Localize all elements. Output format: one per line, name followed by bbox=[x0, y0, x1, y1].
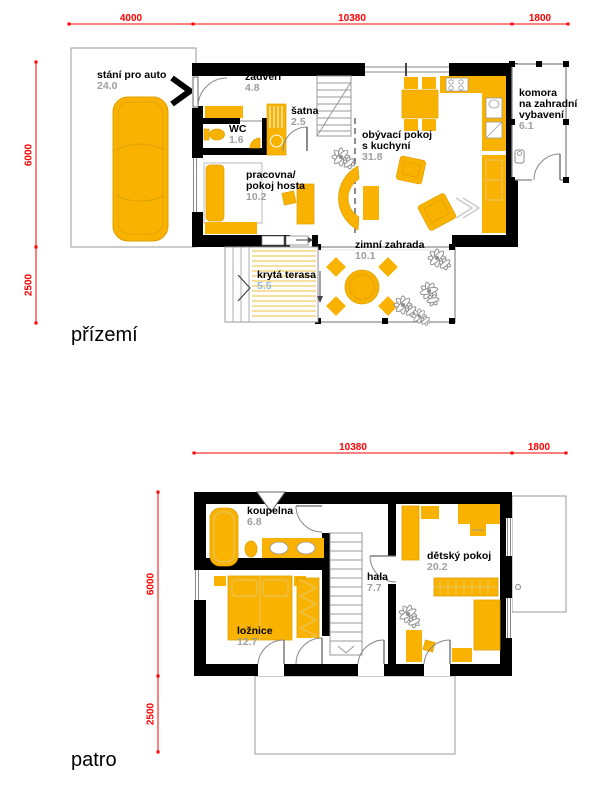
room-label-hala: hala7.7 bbox=[367, 572, 388, 594]
armchair bbox=[417, 193, 457, 232]
plant bbox=[332, 148, 357, 171]
stairs-ground bbox=[317, 76, 351, 136]
room-label-komora: komorana zahradnívybavení6.1 bbox=[519, 88, 577, 132]
room-label-koupelna: koupelna6.8 bbox=[247, 506, 293, 528]
dim-10380-upper: 10380 bbox=[339, 442, 367, 453]
hall-cabinet bbox=[205, 106, 243, 118]
storage-roof-outline bbox=[512, 496, 566, 612]
dim-10380-ground: 10380 bbox=[338, 13, 366, 24]
terrace-roof-outline bbox=[255, 676, 455, 754]
floorplan-page: 4000 10380 1800 6000 2500 stání pro auto… bbox=[0, 0, 600, 800]
kids-desk-2 bbox=[406, 630, 422, 662]
kids-bed bbox=[402, 506, 419, 560]
room-label-loznice: ložnice12.7 bbox=[237, 626, 273, 648]
daybed bbox=[206, 165, 224, 221]
room-label-satna: šatna2.5 bbox=[291, 106, 318, 128]
room-label-detsky-pokoj: dětský pokoj20.2 bbox=[427, 551, 491, 573]
toilet bbox=[245, 541, 257, 557]
kids-wardrobe bbox=[434, 578, 498, 596]
kids-desk bbox=[458, 504, 500, 524]
dim-1800-ground: 1800 bbox=[529, 13, 551, 24]
room-label-zimni-zahrada: zimní zahrada10.1 bbox=[355, 240, 424, 262]
toilet bbox=[210, 129, 225, 140]
plant bbox=[396, 603, 426, 632]
dim-6000-upper: 6000 bbox=[146, 573, 157, 595]
upper-floor-plan bbox=[157, 452, 568, 755]
front-door bbox=[192, 76, 227, 108]
satna-door bbox=[283, 127, 307, 151]
side-table bbox=[363, 186, 379, 220]
dining-table bbox=[402, 90, 438, 118]
dim-1800-upper: 1800 bbox=[528, 442, 550, 453]
sofa bbox=[338, 166, 359, 230]
room-label-pracovna: pracovna/pokoj hosta10.2 bbox=[246, 170, 305, 203]
terrace-door bbox=[262, 235, 313, 247]
bathroom-door bbox=[296, 506, 322, 532]
left-window bbox=[192, 158, 198, 212]
car bbox=[113, 97, 168, 241]
top-window bbox=[362, 63, 452, 76]
room-label-kryta-terasa: krytá terasa5.5 bbox=[257, 270, 316, 292]
utility-sink bbox=[515, 150, 524, 163]
room-label-zadveri: zádveří4.8 bbox=[245, 72, 281, 94]
room-label-obyvaci: obývací pokojs kuchyní31.8 bbox=[362, 130, 432, 163]
dim-2500-ground: 2500 bbox=[24, 274, 35, 296]
bedroom-door bbox=[296, 638, 322, 664]
room-label-garage: stání pro auto24.0 bbox=[97, 70, 166, 92]
cabinet bbox=[205, 222, 257, 234]
room-label-wc: WC1.6 bbox=[229, 124, 247, 146]
round-table bbox=[345, 270, 379, 304]
dim-4000: 4000 bbox=[120, 13, 142, 24]
childrens-room-furniture bbox=[402, 504, 500, 662]
dim-6000-ground: 6000 bbox=[24, 144, 35, 166]
dim-2500-upper: 2500 bbox=[146, 703, 157, 725]
floor-title-patro: patro bbox=[71, 749, 117, 772]
kids-bed-2 bbox=[474, 600, 500, 650]
corner-sink bbox=[250, 138, 260, 148]
floor-title-prizemi: přízemí bbox=[71, 324, 138, 347]
stairs-upper bbox=[330, 533, 362, 655]
